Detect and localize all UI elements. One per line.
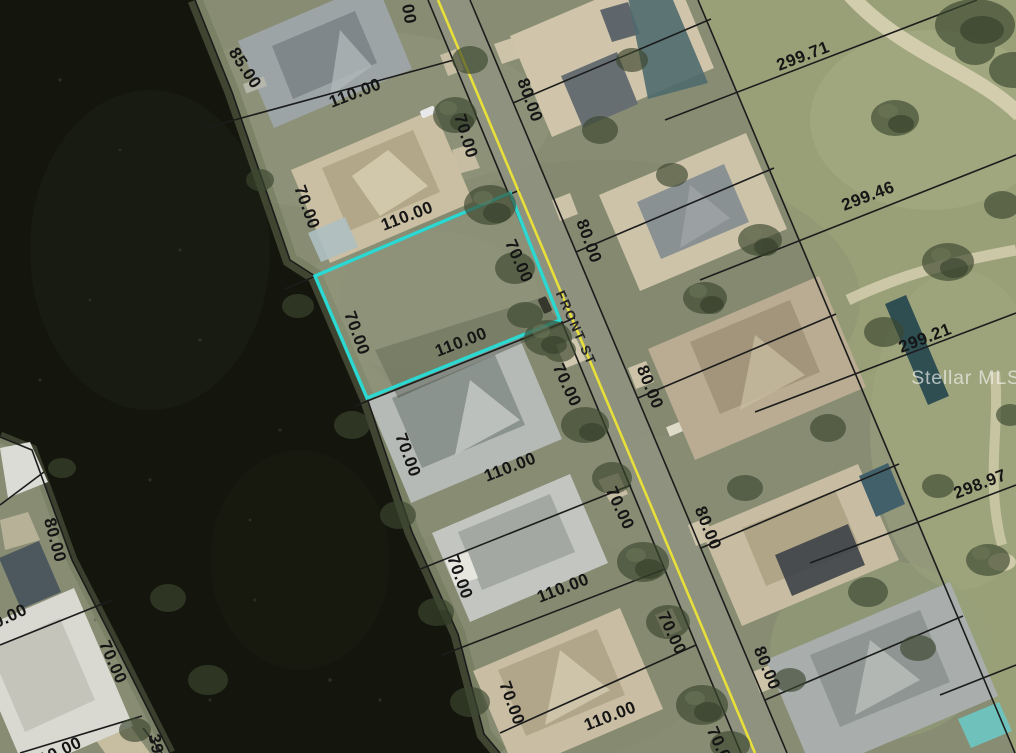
aerial-plat-map: 85.00 110.00 70.00 00 80.00 299.71 299.4… [0, 0, 1016, 753]
watermark: Stellar MLS [911, 367, 1016, 389]
dimension-label: 00 [398, 3, 420, 26]
dimension-label: 39 [145, 732, 168, 753]
map-canvas: 85.00 110.00 70.00 00 80.00 299.71 299.4… [0, 0, 1016, 753]
